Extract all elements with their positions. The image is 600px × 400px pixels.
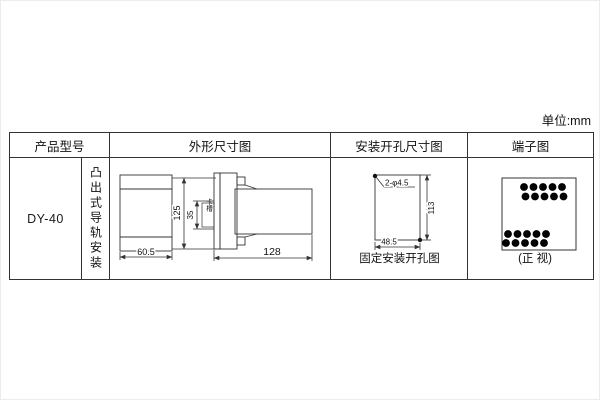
unit-label: 单位:mm bbox=[542, 110, 591, 129]
terminal-number: 17 bbox=[532, 194, 538, 200]
terminal-number: 9 bbox=[535, 232, 538, 238]
terminal-number: 13 bbox=[540, 185, 546, 191]
terminal-number: 1 bbox=[505, 241, 508, 247]
front-view-drawing bbox=[120, 175, 172, 251]
dim-hole-width-48-5: 48.5 bbox=[375, 238, 420, 251]
outline-diagram: 60.5 125 35 卡槽 bbox=[110, 158, 331, 279]
slot-label: 卡槽 bbox=[205, 197, 213, 213]
header-mounting-holes: 安装开孔尺寸图 bbox=[331, 133, 468, 158]
spec-table: 产品型号 外形尺寸图 安装开孔尺寸图 端子图 DY-40 凸出式导轨安装 bbox=[9, 132, 594, 280]
dim-label-hole-width: 48.5 bbox=[381, 238, 397, 247]
terminal-number: 11 bbox=[521, 185, 527, 191]
terminal-number: 8 bbox=[526, 232, 529, 238]
terminal-number: 20 bbox=[561, 194, 567, 200]
dim-width-60-5: 60.5 bbox=[120, 247, 172, 260]
dim-label-hole-height: 113 bbox=[427, 201, 436, 214]
dim-label-depth: 128 bbox=[263, 246, 281, 258]
terminal-diagram-caption: (正 视) bbox=[518, 251, 552, 265]
dim-slot-35: 35 卡槽 bbox=[186, 197, 214, 229]
terminal-diagram: 11 12 13 14 15 16 17 18 19 20 6 7 8 9 10 bbox=[468, 158, 593, 279]
terminal-number: 3 bbox=[524, 241, 527, 247]
side-view-drawing bbox=[214, 173, 312, 249]
terminal-group-top: 11 12 13 14 15 16 17 18 19 20 bbox=[520, 183, 567, 200]
terminal-number: 14 bbox=[550, 185, 556, 191]
terminal-number: 4 bbox=[533, 241, 536, 247]
hole-diagram-caption: 固定安装开孔图 bbox=[359, 251, 440, 265]
terminal-number: 18 bbox=[542, 194, 548, 200]
terminal-number: 6 bbox=[507, 232, 510, 238]
hole-callout: 2-φ4.5 bbox=[376, 177, 415, 188]
mounting-type-label: 凸出式导轨安装 bbox=[90, 166, 102, 271]
outline-diagram-cell: 60.5 125 35 卡槽 bbox=[110, 158, 331, 279]
terminal-diagram-cell: 11 12 13 14 15 16 17 18 19 20 6 7 8 9 10 bbox=[468, 158, 593, 279]
terminal-number: 7 bbox=[516, 232, 519, 238]
header-terminal-diagram: 端子图 bbox=[468, 133, 593, 158]
terminal-number: 19 bbox=[551, 194, 557, 200]
dim-hole-height-113: 113 bbox=[420, 175, 436, 240]
datasheet-page: 单位:mm 产品型号 外形尺寸图 安装开孔尺寸图 端子图 DY-40 凸出式导轨… bbox=[0, 0, 600, 400]
terminal-number: 15 bbox=[559, 185, 565, 191]
terminal-number: 2 bbox=[514, 241, 517, 247]
header-product-model: 产品型号 bbox=[10, 133, 110, 158]
dim-label-width: 60.5 bbox=[137, 247, 155, 257]
dim-label-height: 125 bbox=[172, 205, 182, 220]
terminal-number: 12 bbox=[531, 185, 537, 191]
dim-label-slot: 35 bbox=[186, 210, 195, 219]
product-model-value: DY-40 bbox=[10, 158, 82, 279]
terminal-number: 10 bbox=[543, 232, 549, 238]
terminal-number: 5 bbox=[543, 241, 546, 247]
dim-depth-128: 128 bbox=[214, 235, 312, 261]
terminal-number: 16 bbox=[523, 194, 529, 200]
hole-size-label: 2-φ4.5 bbox=[385, 179, 409, 188]
hole-diagram-cell: 2-φ4.5 113 48.5 固定安装开孔图 bbox=[331, 158, 468, 279]
hole-diagram: 2-φ4.5 113 48.5 固定安装开孔图 bbox=[331, 158, 468, 279]
terminal-group-bottom: 6 7 8 9 10 1 2 3 4 5 bbox=[502, 230, 550, 247]
mounting-type-cell: 凸出式导轨安装 bbox=[82, 158, 110, 279]
header-outline-dimensions: 外形尺寸图 bbox=[110, 133, 331, 158]
